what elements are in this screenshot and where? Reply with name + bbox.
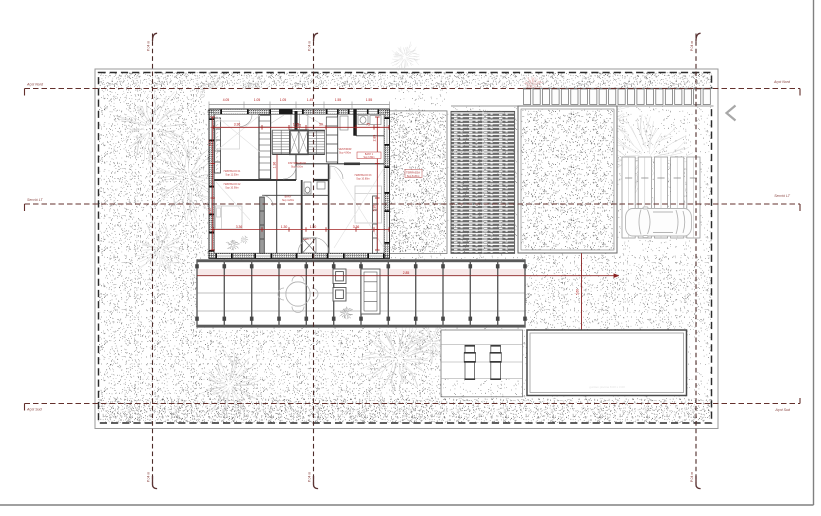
svg-text:P.04 m: P.04 m: [308, 41, 312, 51]
svg-text:3.36: 3.36: [234, 123, 241, 127]
svg-text:75: 75: [366, 123, 370, 127]
svg-text:Sup 4.20m: Sup 4.20m: [282, 199, 294, 202]
svg-text:P.04 m: P.04 m: [147, 472, 151, 482]
svg-text:Sup 10.80m: Sup 10.80m: [356, 177, 369, 180]
svg-text:P.04 m: P.04 m: [690, 472, 694, 482]
svg-text:BANY 1: BANY 1: [365, 153, 374, 156]
svg-text:1.05: 1.05: [293, 123, 300, 127]
svg-text:2.85: 2.85: [403, 271, 410, 275]
svg-text:5.60: 5.60: [576, 289, 580, 295]
svg-text:4.10: 4.10: [208, 208, 212, 215]
svg-text:2.85: 2.85: [373, 135, 377, 142]
svg-text:Sup 4.50m: Sup 4.50m: [291, 165, 303, 168]
svg-text:1.05: 1.05: [280, 98, 287, 102]
svg-text:1.36: 1.36: [273, 162, 277, 169]
svg-text:1.45: 1.45: [307, 98, 314, 102]
svg-text:Sup 10.90m: Sup 10.90m: [225, 186, 238, 189]
svg-text:gunitex piscina 8.00 x 3.00: gunitex piscina 8.00 x 3.00: [589, 385, 625, 389]
svg-text:4.05: 4.05: [223, 98, 230, 102]
svg-text:5.95: 5.95: [373, 205, 377, 212]
svg-text:50: 50: [319, 123, 323, 127]
svg-text:Açot Sud: Açot Sud: [774, 408, 791, 412]
svg-text:Sup 11.50m: Sup 11.50m: [225, 173, 238, 176]
svg-text:Açot Nord: Açot Nord: [26, 83, 44, 87]
svg-text:Secció LT: Secció LT: [27, 198, 44, 202]
svg-text:1.05: 1.05: [254, 98, 261, 102]
svg-text:P.04 m: P.04 m: [690, 41, 694, 51]
svg-text:Sup 8.20m: Sup 8.20m: [407, 174, 420, 178]
svg-text:Secció LT: Secció LT: [774, 194, 791, 198]
svg-text:Sup 3.80m: Sup 3.80m: [363, 157, 374, 159]
svg-text:1.30: 1.30: [281, 225, 288, 229]
svg-text:Sup 4.90m: Sup 4.90m: [339, 151, 351, 154]
svg-text:P.04 m: P.04 m: [147, 41, 151, 51]
svg-text:Açot Sud: Açot Sud: [26, 408, 43, 412]
svg-text:1.55: 1.55: [335, 98, 342, 102]
svg-text:BANY 2: BANY 2: [303, 238, 312, 241]
svg-text:P.04 m: P.04 m: [308, 472, 312, 482]
svg-text:3.36: 3.36: [353, 225, 360, 229]
svg-text:1.55: 1.55: [366, 98, 373, 102]
svg-text:Açot Nord: Açot Nord: [773, 80, 791, 84]
svg-text:4.10: 4.10: [208, 140, 212, 147]
svg-text:3.36: 3.36: [236, 225, 243, 229]
